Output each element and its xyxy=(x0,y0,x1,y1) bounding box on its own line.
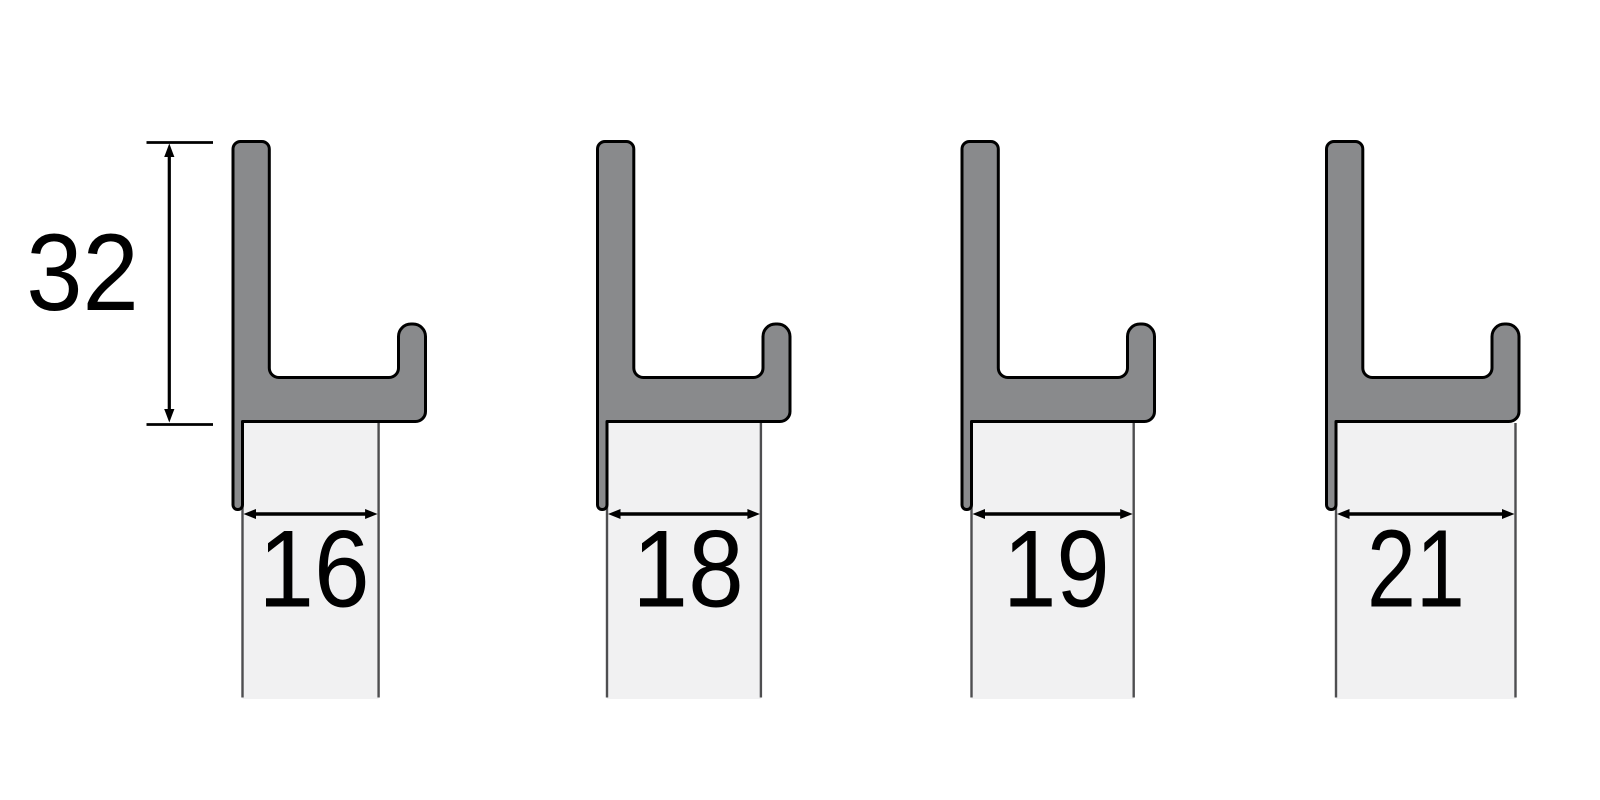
svg-text:19: 19 xyxy=(1003,507,1109,630)
svg-text:18: 18 xyxy=(632,508,743,630)
svg-text:21: 21 xyxy=(1367,508,1465,631)
svg-text:16: 16 xyxy=(258,508,369,630)
svg-text:32: 32 xyxy=(26,211,139,334)
